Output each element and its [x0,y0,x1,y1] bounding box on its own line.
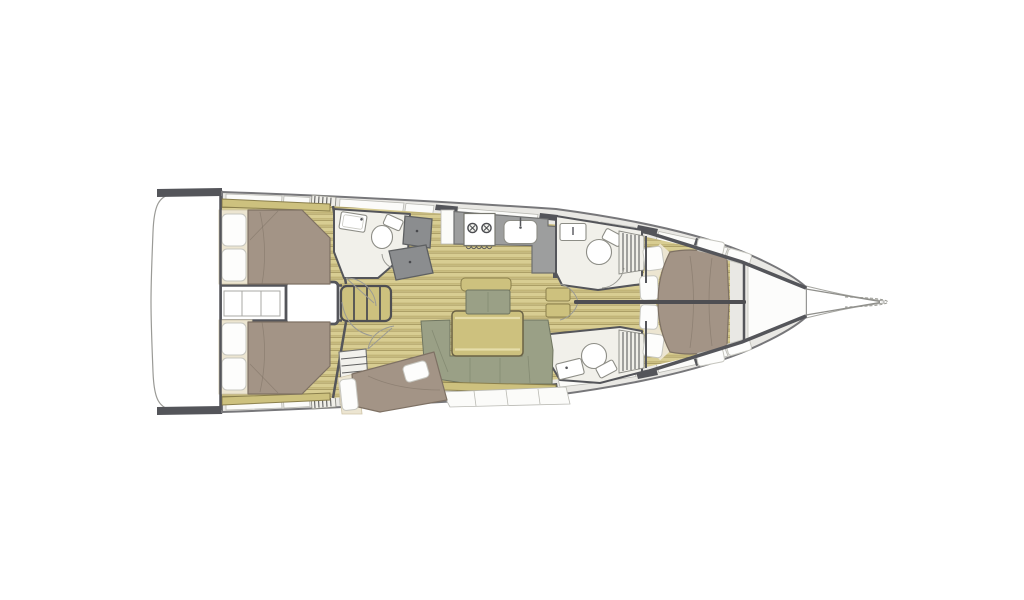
louvered-locker-top [619,231,644,274]
step [546,304,570,317]
cushion [639,305,658,330]
washbasin [339,212,367,233]
storage-shelves: Storage shelves [224,291,280,316]
pillow [222,358,246,390]
toilet [372,226,393,249]
galley-sink: Galley sink [504,218,537,244]
pillow [339,378,358,411]
saloon-table: Saloon table [452,311,523,356]
transom-coaming-bottom [157,406,222,415]
step [546,288,570,301]
pillow [222,323,246,355]
cushion [639,276,658,301]
stove: Two-burner stove [464,214,495,249]
swim-platform: Swim platform / transom [151,188,222,415]
armchair: Saloon armchair [461,278,511,314]
companionway-steps: Companionway steps [341,286,391,321]
boat-floor-plan: Sailboat interior layout plan, bow to th… [0,0,1024,600]
centerline [574,300,746,304]
pillow [222,249,246,281]
transom-shape [151,191,222,413]
stern-center: Storage shelves Companionway / engine bo… [220,282,391,324]
toilet [587,240,612,265]
pillow [222,214,246,246]
companionway-engine-box: Companionway / engine box [286,282,338,324]
transom-coaming-top [157,188,222,197]
galley-cabinet [441,210,454,244]
detail-dot [416,230,419,233]
louvered-locker-bottom [619,330,644,373]
detail-dot [409,261,412,264]
